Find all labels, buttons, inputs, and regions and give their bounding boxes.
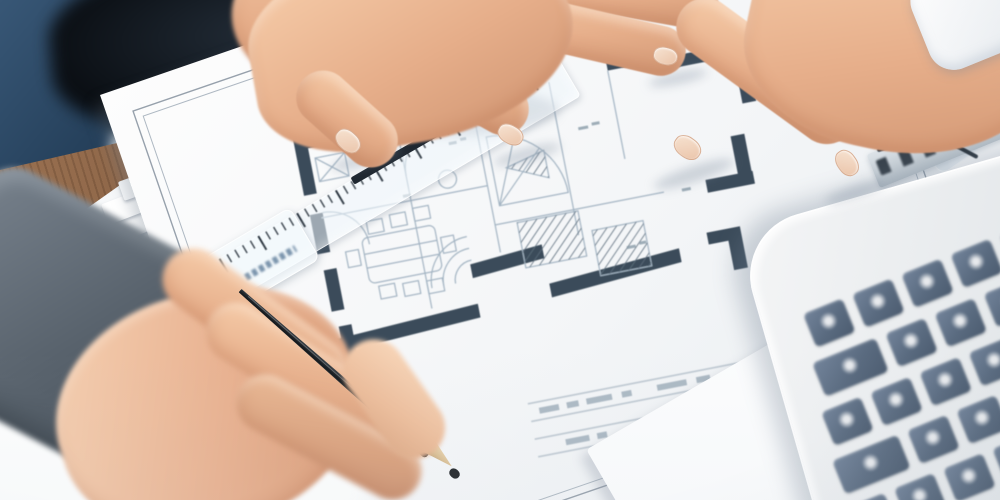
laptop-key xyxy=(984,278,1000,327)
laptop-key xyxy=(934,298,986,347)
laptop-key xyxy=(969,337,1000,386)
laptop-key xyxy=(885,318,937,367)
laptop-key xyxy=(870,377,922,426)
laptop-key xyxy=(956,395,1000,444)
laptop-key xyxy=(907,415,959,464)
laptop-key xyxy=(943,453,995,500)
laptop-key xyxy=(852,278,904,327)
laptop-key xyxy=(803,298,855,347)
laptop-key xyxy=(812,338,889,397)
photo-scene xyxy=(0,0,1000,500)
laptop-key xyxy=(821,397,873,446)
laptop-key xyxy=(950,239,1000,288)
laptop-key xyxy=(919,357,971,406)
laptop-key xyxy=(894,473,946,500)
laptop-key xyxy=(832,434,910,494)
laptop-key xyxy=(901,258,953,307)
laptop-key xyxy=(992,433,1000,482)
